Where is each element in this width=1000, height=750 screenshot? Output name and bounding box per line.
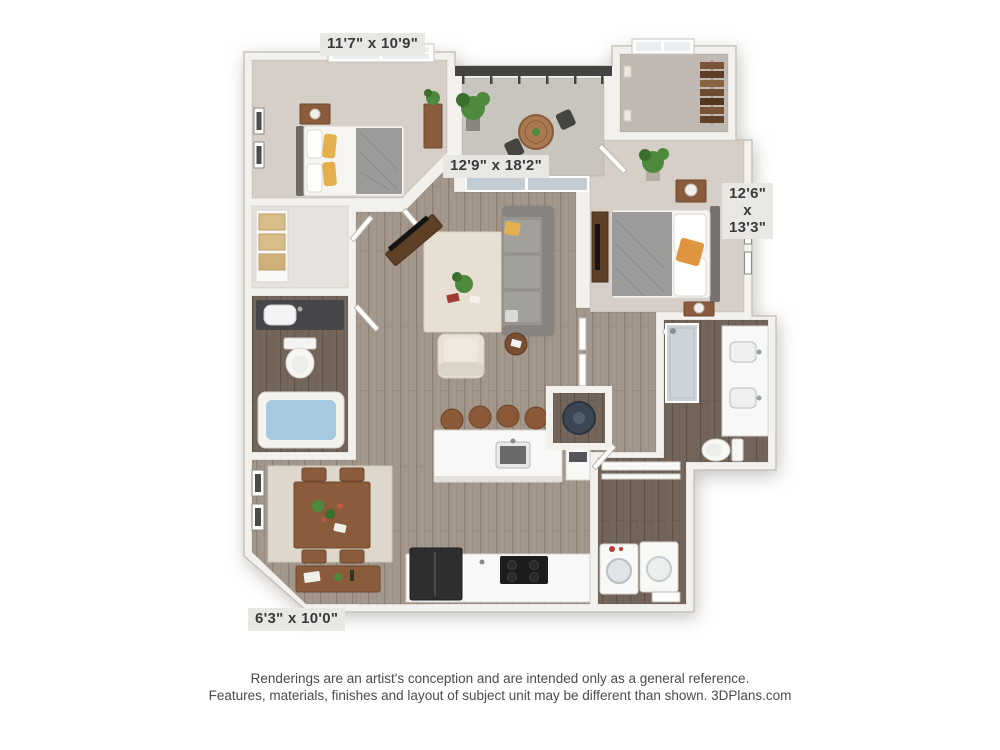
laundry-shelf bbox=[602, 474, 680, 479]
toilet bbox=[702, 439, 743, 461]
kitchen-island bbox=[434, 430, 562, 482]
bar-stool bbox=[441, 409, 463, 431]
dryer bbox=[640, 542, 678, 592]
bed bbox=[612, 206, 720, 302]
armchair bbox=[438, 334, 484, 378]
dimension-label-bedroom-2-line3: 13'3" bbox=[729, 220, 766, 237]
bar-stool bbox=[497, 405, 519, 427]
entry-door-panel bbox=[652, 592, 680, 602]
dimension-label-living-room: 12'9" x 18'2" bbox=[443, 155, 549, 178]
dresser-tv bbox=[592, 212, 608, 282]
closet-shelves bbox=[256, 210, 288, 282]
dimension-label-bedroom-2: 12'6" x 13'3" bbox=[722, 183, 773, 239]
toilet bbox=[284, 338, 316, 378]
shower bbox=[666, 324, 698, 402]
bathtub bbox=[258, 392, 344, 448]
nightstand bbox=[684, 302, 714, 316]
dimension-label-bedroom-2-line1: 12'6" bbox=[729, 186, 766, 203]
vanity bbox=[256, 300, 344, 330]
dining-chair bbox=[340, 468, 364, 481]
dimension-label-bedroom-1: 11'7" x 10'9" bbox=[320, 33, 425, 56]
sconce bbox=[624, 110, 631, 121]
sideboard bbox=[296, 566, 380, 592]
hall-closet-door bbox=[579, 318, 586, 350]
bar-stool bbox=[525, 407, 547, 429]
hall-closet-door bbox=[579, 354, 586, 386]
sofa bbox=[502, 206, 554, 336]
disclaimer-line-2: Features, materials, finishes and layout… bbox=[0, 687, 1000, 704]
disclaimer: Renderings are an artist's conception an… bbox=[0, 670, 1000, 704]
sconce bbox=[624, 66, 631, 77]
dining-chair bbox=[340, 550, 364, 563]
water-heater-closet bbox=[546, 386, 612, 450]
refrigerator bbox=[410, 548, 462, 600]
bistro-table bbox=[519, 115, 553, 149]
nightstand bbox=[676, 180, 706, 202]
window-closet bbox=[632, 39, 694, 54]
laundry-shelf bbox=[602, 462, 680, 470]
nightstand bbox=[300, 104, 330, 124]
picture-frame bbox=[745, 252, 752, 274]
sliding-glass-door bbox=[466, 177, 588, 191]
dresser bbox=[424, 89, 442, 148]
dining-chair bbox=[302, 550, 326, 563]
floor-plan-rendering bbox=[0, 0, 1000, 750]
dining-chair bbox=[302, 468, 326, 481]
side-table bbox=[505, 333, 527, 355]
dimension-label-dining: 6'3" x 10'0" bbox=[248, 608, 345, 631]
floor-plan-page: 11'7" x 10'9" 12'9" x 18'2" 12'6" x 13'3… bbox=[0, 0, 1000, 750]
washer bbox=[600, 544, 638, 594]
double-vanity bbox=[722, 326, 768, 436]
bed bbox=[296, 126, 404, 196]
range-cooktop bbox=[500, 556, 548, 584]
dimension-label-bedroom-2-line2: x bbox=[729, 203, 766, 220]
disclaimer-line-1: Renderings are an artist's conception an… bbox=[0, 670, 1000, 687]
bar-stool bbox=[469, 406, 491, 428]
